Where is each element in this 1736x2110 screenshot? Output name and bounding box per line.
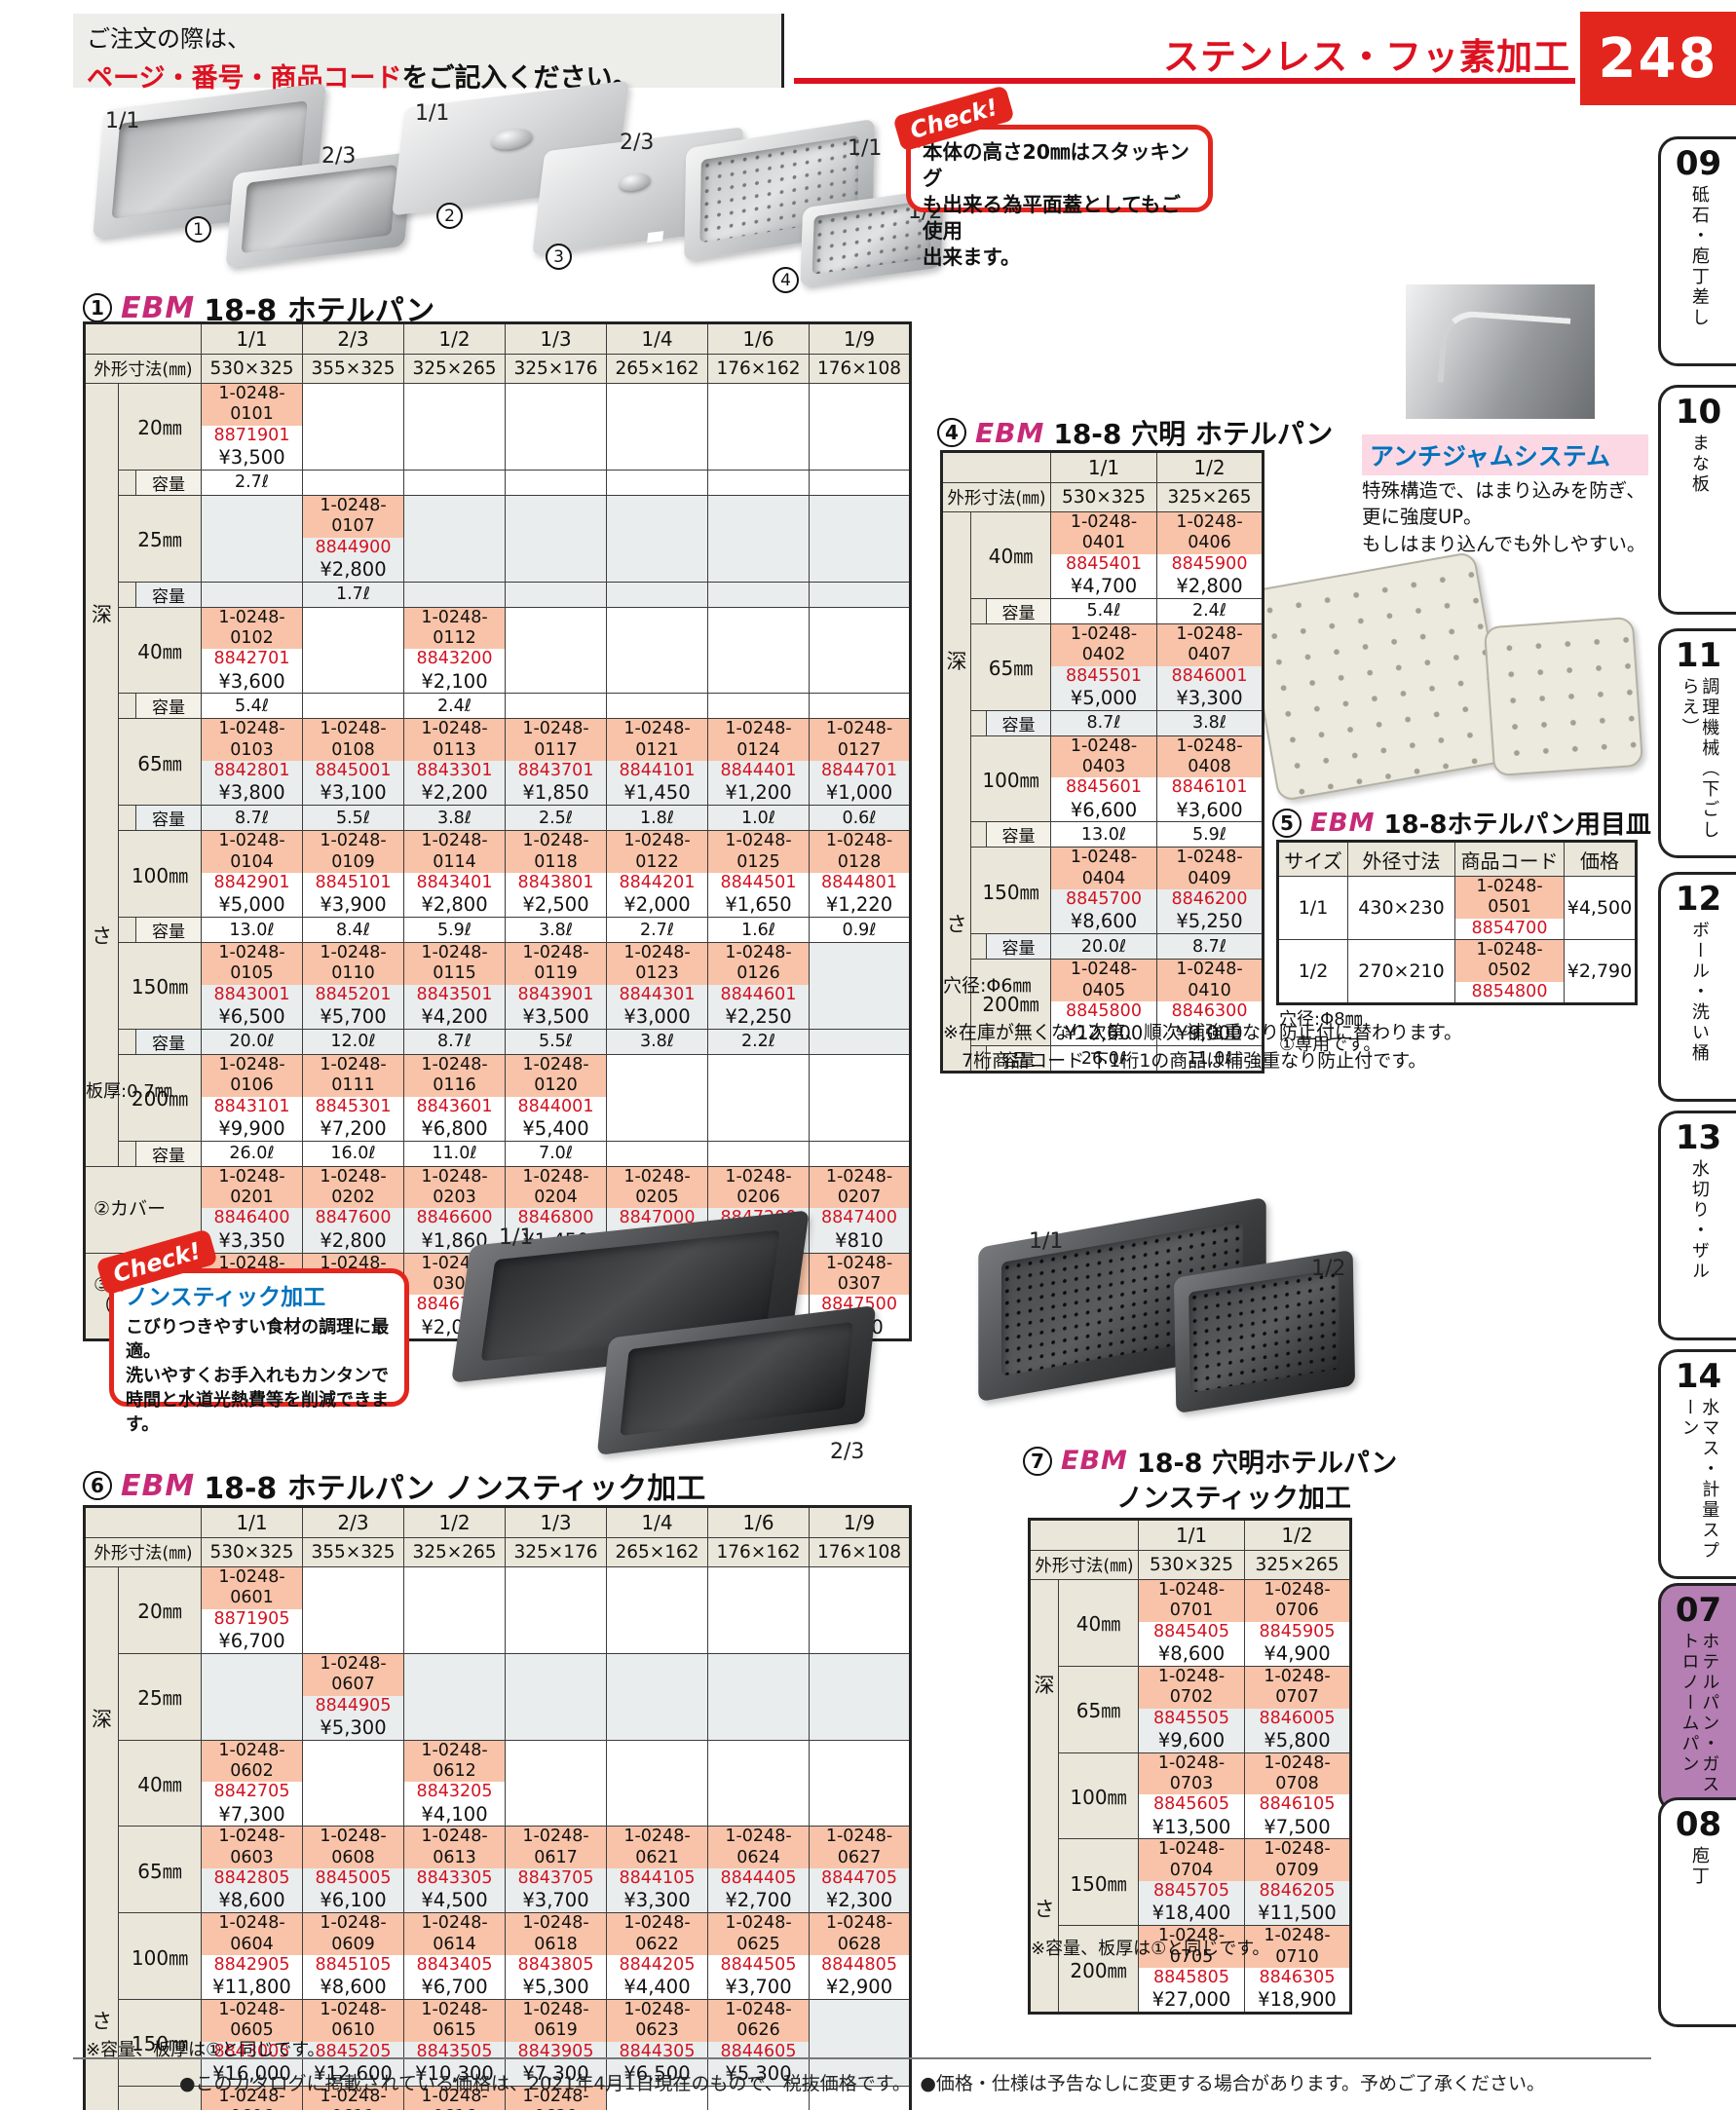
price: ¥3,500 (202, 446, 302, 470)
table1-container: 1/12/31/21/31/41/61/9外形寸法(㎜)530×325355×3… (83, 321, 912, 1341)
table-cell (810, 1653, 911, 1740)
dims-label: 外形寸法(㎜) (85, 1538, 202, 1567)
product-cell: 1-0248-04048845700¥8,600 (1051, 848, 1156, 933)
order-code: 1-0248-0128 (810, 831, 909, 873)
dims-label: 外形寸法(㎜) (85, 355, 202, 384)
price: ¥2,790 (1565, 940, 1637, 1004)
product-cell: 1-0248-01048842901¥5,000 (202, 831, 302, 917)
table-cell (506, 607, 607, 694)
product-code: 8844201 (607, 873, 707, 893)
table-cell (202, 1653, 303, 1740)
price: ¥5,700 (303, 1005, 403, 1029)
price: ¥5,250 (1157, 910, 1262, 933)
image-size-label: 1/1 (415, 101, 449, 126)
order-code: 1-0248-0604 (202, 1913, 302, 1955)
depth-label: 20㎜ (119, 384, 202, 471)
table-cell: 1-0248-01138843301¥2,200 (404, 719, 506, 806)
table-cell (404, 1653, 506, 1740)
ebm-logo: EBM (121, 1469, 195, 1503)
product-cell: 1-0248-06288844805¥2,900 (810, 1913, 909, 1999)
table-cell: 1-0248-07038845605¥13,500 (1139, 1752, 1245, 1839)
table-cell (810, 1054, 911, 1141)
product-cell: 1-0248-06228844205¥4,400 (607, 1913, 707, 1999)
product-cell: 1-0248-07028845505¥9,600 (1139, 1667, 1244, 1752)
order-code: 1-0248-0607 (303, 1654, 403, 1696)
capacity-value (810, 1141, 911, 1166)
order-code: 1-0248-0101 (202, 384, 302, 426)
column-header: サイズ (1278, 842, 1348, 877)
product-code: 8846200 (1157, 889, 1262, 910)
product-cell: 1-0248-04018845401¥4,700 (1051, 512, 1156, 598)
order-code: 1-0248-0619 (506, 2000, 606, 2042)
drain-plate-image-1-1 (1242, 551, 1511, 803)
size-value: 1/1 (1278, 877, 1348, 940)
order-instruction-line2: ページ・番号・商品コードをご記入ください。 (87, 57, 781, 94)
price: ¥3,000 (607, 1005, 707, 1029)
table-cell: 1-0248-02038846600¥1,860 (404, 1166, 506, 1253)
product-code: 8846001 (1157, 666, 1262, 687)
table-cell (708, 607, 810, 694)
product-cell: 1-0248-01198843901¥3,500 (506, 943, 606, 1029)
table-cell: 1-0248-04088846101¥3,600 (1157, 735, 1264, 822)
order-code: 1-0248-0110 (303, 943, 403, 985)
product-code: 8844805 (810, 1955, 909, 1976)
product-cell: 1-0248-06018871905¥6,700 (202, 1567, 302, 1653)
column-header: 商品コード (1455, 842, 1565, 877)
cover-notch (648, 231, 664, 243)
outer-dimension: 325×176 (506, 1538, 607, 1567)
table-cell: 1-0248-01228844201¥2,000 (607, 831, 708, 918)
price: ¥3,800 (202, 781, 302, 805)
depth-label: 100㎜ (1059, 1752, 1139, 1839)
price: ¥2,900 (810, 1976, 909, 1999)
order-code: 1-0248-0102 (202, 608, 302, 650)
depth-axis-label: 深さ (85, 384, 119, 1167)
product-code: 8845401 (1051, 554, 1156, 575)
capacity-value: 26.0ℓ (202, 1141, 303, 1166)
table-cell: 1-0248-06138843305¥4,500 (404, 1827, 506, 1913)
sidebar-tab-13: 13水切り・ザル (1658, 1111, 1736, 1340)
table-cell: 1-0248-02028847600¥2,800 (303, 1166, 404, 1253)
table-cell: 1-0248-07078846005¥5,800 (1245, 1666, 1351, 1752)
order-code: 1-0248-0602 (202, 1741, 302, 1783)
order-instruction-line1: ご注文の際は、 (87, 19, 781, 54)
depth-label: 150㎜ (971, 848, 1051, 934)
ebm-logo: EBM (975, 417, 1044, 449)
table-cell: 1-0248-01018871901¥3,500 (202, 384, 303, 471)
product-code: 8843205 (404, 1782, 505, 1802)
table-cell (810, 1567, 911, 1654)
order-code: 1-0248-0123 (607, 943, 707, 985)
order-code: 1-0248-0121 (607, 719, 707, 761)
order-code: 1-0248-0609 (303, 1913, 403, 1955)
table-cell: 1-0248-01148843401¥2,800 (404, 831, 506, 918)
order-code: 1-0248-0109 (303, 831, 403, 873)
price: ¥1,850 (506, 781, 606, 805)
table-cell (708, 1567, 810, 1654)
order-code: 1-0248-0124 (708, 719, 809, 761)
product-code: 8844105 (607, 1868, 707, 1889)
image-size-label: 2/3 (620, 131, 654, 155)
table-cell: 1-0248-01028842701¥3,600 (202, 607, 303, 694)
table-cell: 1-0248-06098845105¥8,600 (303, 1913, 404, 2000)
product-code: 8843301 (404, 761, 505, 781)
tab-label: 庖丁 (1688, 1846, 1709, 1887)
order-code: 1-0248-0406 (1157, 512, 1262, 554)
price: ¥8,600 (303, 1976, 403, 1999)
table-cell: 1-0248-06288844805¥2,900 (810, 1913, 911, 2000)
table-cell: 1-0248-01158843501¥4,200 (404, 943, 506, 1030)
product-cell: 1-0248-06178843705¥3,700 (506, 1827, 606, 1912)
column-header: 1/2 (1245, 1520, 1351, 1551)
order-code: 1-0248-0116 (404, 1055, 505, 1097)
product-code: 8842705 (202, 1782, 302, 1802)
product-code: 8845505 (1139, 1709, 1244, 1729)
image-size-label: 2/3 (321, 144, 356, 169)
price: ¥1,200 (708, 781, 809, 805)
table6-number: 6 (83, 1471, 112, 1500)
table-cell: 1-0248-06028842705¥7,300 (202, 1740, 303, 1827)
column-header: 1/2 (404, 323, 506, 355)
table-cell (202, 495, 303, 582)
table1-note: 板厚:0.7㎜ (86, 1077, 172, 1103)
product-code: 8845700 (1051, 889, 1156, 910)
price: ¥2,000 (607, 893, 707, 917)
table7-number: 7 (1023, 1447, 1052, 1476)
outer-dimension: 355×325 (303, 1538, 404, 1567)
price: ¥4,100 (404, 1803, 505, 1827)
capacity-label: 容量 (987, 598, 1051, 623)
product-code: 8847400 (810, 1208, 909, 1228)
table-cell: 1-0248-01168843601¥6,800 (404, 1054, 506, 1141)
product-code: 8842905 (202, 1955, 302, 1976)
product-code: 8843601 (404, 1097, 505, 1117)
table-cell: 1-0248-01038842801¥3,800 (202, 719, 303, 806)
image-ref-number-3: 3 (546, 244, 572, 270)
tab-number: 10 (1676, 396, 1721, 429)
product-code: 8845001 (303, 761, 403, 781)
table-cell: 1-0248-01288844801¥1,220 (810, 831, 911, 918)
price: ¥1,220 (810, 893, 909, 917)
product-cell: 1-0248-01238844301¥3,000 (607, 943, 707, 1029)
nonstick-text: こびりつきやすい食材の調理に最適。 洗いやすくお手入れもカンタンで 時間と水道光… (126, 1316, 393, 1437)
product-code: 8844505 (708, 1955, 809, 1976)
capacity-value: 5.9ℓ (404, 918, 506, 943)
price: ¥1,450 (607, 781, 707, 805)
product-code: 8844205 (607, 1955, 707, 1976)
table-cell: 1-0248-01248844401¥1,200 (708, 719, 810, 806)
product-cell: 1-0248-06248844405¥2,700 (708, 1827, 809, 1912)
product-code: 8871905 (202, 1609, 302, 1630)
table-cell: 1-0248-06178843705¥3,700 (506, 1827, 607, 1913)
order-code: 1-0248-0501 (1455, 877, 1564, 919)
table-cell (506, 1653, 607, 1740)
capacity-label: 容量 (136, 582, 202, 607)
product-cell: 1-0248-01058843001¥6,500 (202, 943, 302, 1029)
column-header: 1/4 (607, 1507, 708, 1538)
table-cell (303, 1740, 404, 1827)
order-code: 1-0248-0707 (1245, 1667, 1349, 1709)
order-code: 1-0248-0608 (303, 1827, 403, 1868)
depth-label: 100㎜ (971, 735, 1051, 822)
order-code: 1-0248-0204 (506, 1167, 606, 1209)
price: ¥2,100 (404, 670, 505, 694)
capacity-value (202, 582, 303, 607)
tab-label: ボール・洗い桶 (1688, 921, 1709, 1064)
price: ¥18,400 (1139, 1902, 1244, 1925)
sidebar-tab-09: 09砥石・庖丁差し (1658, 136, 1736, 366)
table-cell: 1-0248-02078847400¥810 (810, 1166, 911, 1253)
product-cell: 1-0248-07068845905¥4,900 (1245, 1580, 1349, 1666)
order-code: 1-0248-0125 (708, 831, 809, 873)
table-cell: 1-0248-06248844405¥2,700 (708, 1827, 810, 1913)
price: ¥4,500 (404, 1889, 505, 1912)
table-cell: 1-0248-07048845705¥18,400 (1139, 1839, 1245, 1926)
product-cell: 1-0248-04098846200¥5,250 (1157, 848, 1262, 933)
table-cell (810, 384, 911, 471)
product-code: 8847600 (303, 1208, 403, 1228)
capacity-value (506, 694, 607, 719)
order-code: 1-0248-0118 (506, 831, 606, 873)
cover-knob (618, 171, 651, 192)
order-code: 1-0248-0404 (1051, 848, 1156, 889)
capacity-value: 12.0ℓ (303, 1029, 404, 1054)
product-cell: 1-0248-01248844401¥1,200 (708, 719, 809, 805)
product-cell: 1-0248-01018871901¥3,500 (202, 384, 302, 470)
capacity-value (303, 470, 404, 495)
capacity-value (607, 694, 708, 719)
product-cell: 1-0248-01108845201¥5,700 (303, 943, 403, 1029)
order-code: 1-0248-0618 (506, 1913, 606, 1955)
tab-number: 13 (1676, 1121, 1721, 1154)
table-cell: 1-0248-06038842805¥8,600 (202, 1827, 303, 1913)
capacity-value: 8.7ℓ (1051, 710, 1157, 735)
price: ¥8,600 (1051, 910, 1156, 933)
table-cell: 1-0248-01258844501¥1,650 (708, 831, 810, 918)
price: ¥2,200 (404, 781, 505, 805)
price: ¥2,800 (404, 893, 505, 917)
column-header: 1/9 (810, 1507, 911, 1538)
table4-name: 18-8 穴明 ホテルパン (1053, 413, 1333, 452)
order-code: 1-0248-0120 (506, 1055, 606, 1097)
table-cell: 1-0248-01058843001¥6,500 (202, 943, 303, 1030)
price: ¥3,900 (303, 893, 403, 917)
product-code: 8845301 (303, 1097, 403, 1117)
price: ¥6,800 (404, 1117, 505, 1141)
order-code: 1-0248-0104 (202, 831, 302, 873)
drain-plate-price-table: サイズ外径寸法商品コード価格1/1430×2301-0248-050188547… (1276, 840, 1638, 1005)
order-code: 1-0248-0625 (708, 1913, 809, 1955)
capacity-label: 容量 (136, 694, 202, 719)
price: ¥2,300 (810, 1889, 909, 1912)
product-code: 8842901 (202, 873, 302, 893)
product-code: 8846105 (1245, 1794, 1349, 1815)
tab-number: 09 (1676, 147, 1721, 180)
product-code: 8846400 (202, 1208, 302, 1228)
product-code: 8854700 (1455, 919, 1564, 939)
product-code: 8846305 (1245, 1968, 1349, 1988)
product-code: 8844801 (810, 873, 909, 893)
table-cell: 1-0248-07068845905¥4,900 (1245, 1580, 1351, 1667)
table-cell (404, 495, 506, 582)
table-cell: 1-0248-01078844900¥2,800 (303, 495, 404, 582)
depth-label: 25㎜ (119, 495, 202, 582)
capacity-value: 8.7ℓ (404, 1029, 506, 1054)
product-cell: 1-0248-06148843405¥6,700 (404, 1913, 505, 1999)
product-cell: 1-0248-01268844601¥2,250 (708, 943, 809, 1029)
product-code: 8844900 (303, 538, 403, 558)
check-callout-text: 本体の高さ20㎜はスタッキング も出来る為平面蓋としてもご使用 出来ます。 (911, 130, 1208, 281)
table-cell (607, 495, 708, 582)
column-header: 1/4 (607, 323, 708, 355)
capacity-label: 容量 (987, 934, 1051, 960)
table-cell (708, 1740, 810, 1827)
capacity-value: 3.8ℓ (404, 806, 506, 831)
dims-label: 外形寸法(㎜) (1030, 1551, 1139, 1580)
table-cell: 1-0248-01208844001¥5,400 (506, 1054, 607, 1141)
check-callout-nonstick: Check! ノンスティック加工 こびりつきやすい食材の調理に最適。 洗いやすく… (109, 1268, 409, 1407)
price: ¥4,400 (607, 1976, 707, 1999)
price: ¥3,350 (202, 1229, 302, 1253)
product-code: 8845705 (1139, 1881, 1244, 1902)
depth-label: 65㎜ (119, 1827, 202, 1913)
antijam-title: アンチジャムシステム (1362, 434, 1648, 475)
capacity-value: 5.5ℓ (303, 806, 404, 831)
price: ¥8,600 (202, 1889, 302, 1912)
depth-label: 150㎜ (119, 943, 202, 1030)
capacity-value: 2.7ℓ (202, 470, 303, 495)
price: ¥6,500 (202, 1005, 302, 1029)
product-code: 8844405 (708, 1868, 809, 1889)
capacity-value (708, 694, 810, 719)
order-code: 1-0248-0627 (810, 1827, 909, 1868)
capacity-value: 5.5ℓ (506, 1029, 607, 1054)
table6-title: 6 EBM 18-8 ホテルパン ノンスティック加工 (83, 1464, 705, 1507)
nonstick-heading: ノンスティック加工 (126, 1283, 393, 1312)
capacity-value (607, 1141, 708, 1166)
table-cell: 1-0248-06218844105¥3,300 (607, 1827, 708, 1913)
header-rule (794, 78, 1575, 84)
capacity-value: 20.0ℓ (1051, 934, 1157, 960)
capacity-value: 20.0ℓ (202, 1029, 303, 1054)
order-code: 1-0248-0112 (404, 608, 505, 650)
column-header: 1/2 (404, 1507, 506, 1538)
order-code: 1-0248-0708 (1245, 1753, 1349, 1795)
price: ¥2,250 (708, 1005, 809, 1029)
depth-label: 65㎜ (119, 719, 202, 806)
order-code: 1-0248-0612 (404, 1741, 505, 1783)
table-cell: 1-0248-04098846200¥5,250 (1157, 848, 1264, 934)
product-cell: 1-0248-04078846001¥3,300 (1157, 624, 1262, 710)
depth-label: 65㎜ (1059, 1666, 1139, 1752)
antijam-photo (1406, 284, 1595, 419)
column-header: 1/6 (708, 323, 810, 355)
product-code: 8846101 (1157, 777, 1262, 798)
price: ¥5,300 (303, 1716, 403, 1740)
product-cell: 1-0248-06088845005¥6,100 (303, 1827, 403, 1912)
product-code: 8845201 (303, 985, 403, 1005)
order-code: 1-0248-0709 (1245, 1839, 1349, 1881)
image-ref-number-2: 2 (436, 203, 463, 229)
product-code: 8843401 (404, 873, 505, 893)
table5-number: 5 (1272, 809, 1302, 838)
tab-number: 07 (1676, 1594, 1721, 1627)
table-cell: 1-0248-01238844301¥3,000 (607, 943, 708, 1030)
product-cell: 1-0248-01168843601¥6,800 (404, 1055, 505, 1141)
order-code: 1-0248-0502 (1455, 940, 1564, 982)
table-cell (506, 1740, 607, 1827)
table4-number: 4 (937, 418, 966, 447)
outer-dimension: 176×108 (810, 355, 911, 384)
image-size-label: 1/1 (105, 109, 139, 133)
capacity-value: 3.8ℓ (506, 918, 607, 943)
tab-number: 12 (1676, 883, 1721, 916)
product-code: 8844601 (708, 985, 809, 1005)
capacity-value: 16.0ℓ (303, 1141, 404, 1166)
catalog-page: ご注文の際は、 ページ・番号・商品コードをご記入ください。 ステンレス・フッ素加… (0, 0, 1736, 2110)
price: ¥11,800 (202, 1976, 302, 1999)
order-code: 1-0248-0706 (1245, 1580, 1349, 1622)
capacity-label: 容量 (136, 806, 202, 831)
capacity-value: 2.4ℓ (404, 694, 506, 719)
product-cell: 1-0248-07038845605¥13,500 (1139, 1753, 1244, 1839)
column-header: 1/1 (1051, 452, 1157, 483)
capacity-value: 8.7ℓ (202, 806, 303, 831)
table1-number: 1 (83, 293, 112, 322)
price: ¥3,300 (1157, 687, 1262, 710)
product-cell: 1-0248-01078844900¥2,800 (303, 496, 403, 582)
outer-dimension: 325×265 (404, 1538, 506, 1567)
sidebar-tab-07: 07ホテルパン・ガストロノームパン (1658, 1583, 1736, 1813)
page-number: 248 (1599, 27, 1718, 91)
capacity-value: 5.9ℓ (1157, 822, 1264, 848)
table-cell: 1-0248-01218844101¥1,450 (607, 719, 708, 806)
order-code: 1-0248-0117 (506, 719, 606, 761)
price: ¥5,800 (1245, 1729, 1349, 1752)
capacity-value: 5.4ℓ (1051, 598, 1157, 623)
product-cell: 1-0248-04038845601¥6,600 (1051, 736, 1156, 822)
table-cell (607, 1740, 708, 1827)
outer-dimension: 530×325 (1139, 1551, 1245, 1580)
product-code: 8844905 (303, 1696, 403, 1716)
order-code: 1-0248-0115 (404, 943, 505, 985)
capacity-value: 3.8ℓ (607, 1029, 708, 1054)
tab-label: 水切り・ザル (1688, 1159, 1709, 1282)
table-cell (303, 384, 404, 471)
depth-label: 65㎜ (971, 623, 1051, 710)
outer-dimension: 265×162 (607, 1538, 708, 1567)
capacity-value: 8.4ℓ (303, 918, 404, 943)
capacity-value: 2.2ℓ (708, 1029, 810, 1054)
table-cell: 1-0248-07088846105¥7,500 (1245, 1752, 1351, 1839)
price: ¥5,000 (1051, 687, 1156, 710)
table-cell (708, 495, 810, 582)
image-size-label: 2/3 (830, 1440, 864, 1464)
capacity-value (810, 694, 911, 719)
capacity-label: 容量 (136, 1141, 202, 1166)
table-cell (810, 1740, 911, 1827)
price: ¥6,100 (303, 1889, 403, 1912)
order-code: 1-0248-0703 (1139, 1753, 1244, 1795)
product-cell: 1-0248-06258844505¥3,700 (708, 1913, 809, 1999)
sidebar-tab-08: 08庖丁 (1658, 1797, 1736, 2027)
table-cell: 1-0248-01088845001¥3,100 (303, 719, 404, 806)
table-cell (607, 384, 708, 471)
image-size-label: 1/1 (848, 136, 882, 161)
product-code: 8843701 (506, 761, 606, 781)
table-cell: 1-0248-04078846001¥3,300 (1157, 623, 1264, 710)
order-code: 1-0248-0122 (607, 831, 707, 873)
